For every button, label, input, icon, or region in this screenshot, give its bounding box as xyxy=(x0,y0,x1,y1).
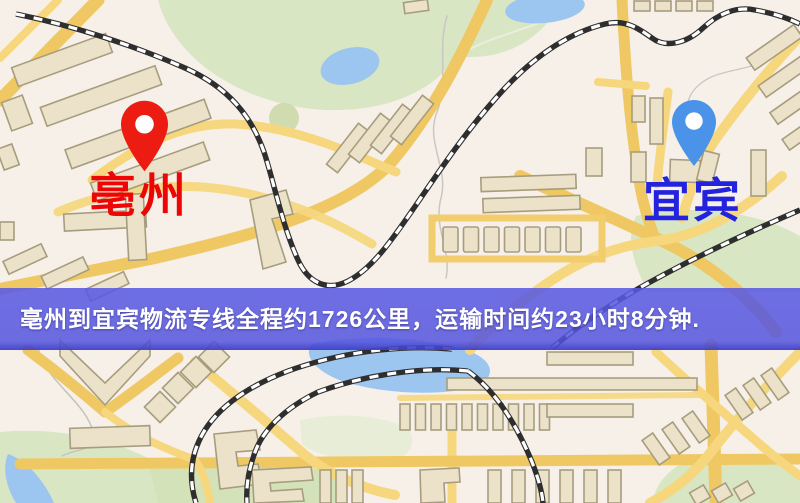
map-background xyxy=(0,0,800,503)
destination-pin-icon xyxy=(672,99,716,167)
route-map-image: 亳州 宜宾 亳州到宜宾物流专线全程约1726公里，运输时间约23小时8分钟. xyxy=(0,0,800,503)
origin-label: 亳州 xyxy=(89,172,189,219)
route-info-banner: 亳州到宜宾物流专线全程约1726公里，运输时间约23小时8分钟. xyxy=(0,288,800,350)
destination-label: 宜宾 xyxy=(643,177,743,224)
origin-pin-icon xyxy=(121,100,168,172)
route-info-text: 亳州到宜宾物流专线全程约1726公里，运输时间约23小时8分钟. xyxy=(20,300,700,334)
